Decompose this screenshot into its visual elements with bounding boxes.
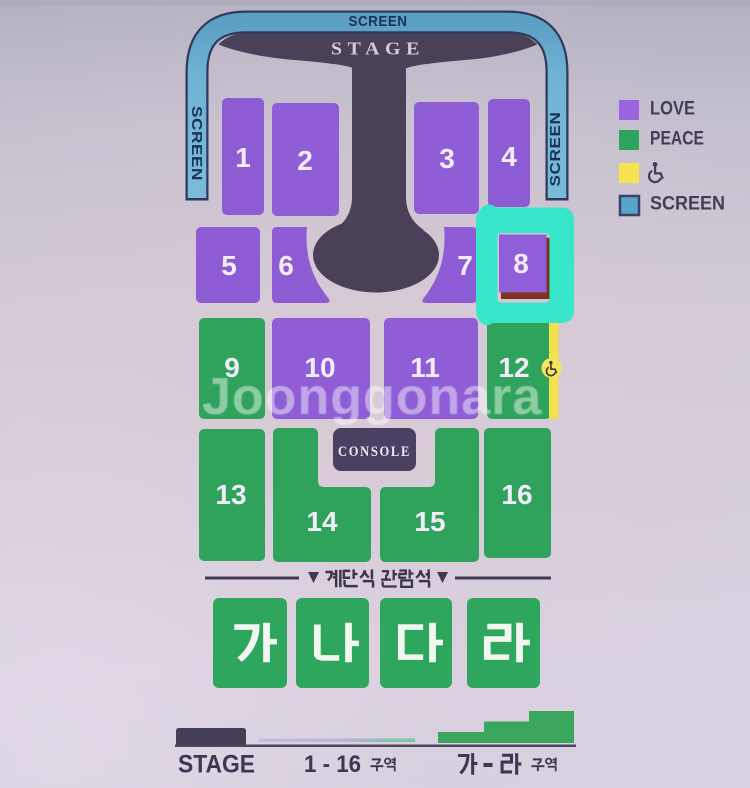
svg-text:SCREEN: SCREEN (547, 112, 564, 187)
svg-text:6: 6 (278, 250, 294, 281)
svg-text:SCREEN: SCREEN (650, 194, 725, 215)
svg-text:Joonggonara: Joonggonara (202, 368, 542, 426)
svg-text:4: 4 (501, 141, 517, 172)
svg-text:STAGE: STAGE (178, 751, 255, 779)
svg-text:3: 3 (439, 143, 455, 174)
svg-text:SCREEN: SCREEN (188, 106, 205, 181)
svg-text:1 - 16: 1 - 16 (304, 751, 361, 778)
svg-text:STAGE: STAGE (331, 39, 425, 59)
svg-text:14: 14 (306, 506, 338, 537)
svg-text:PEACE: PEACE (650, 129, 704, 150)
svg-text:1: 1 (235, 142, 251, 173)
svg-text:SCREEN: SCREEN (349, 14, 408, 30)
svg-text:LOVE: LOVE (650, 99, 695, 120)
svg-text:13: 13 (215, 479, 246, 510)
svg-text:CONSOLE: CONSOLE (338, 444, 411, 460)
svg-text:5: 5 (221, 250, 237, 281)
svg-text:8: 8 (513, 248, 529, 279)
svg-text:2: 2 (297, 145, 313, 176)
svg-text:16: 16 (501, 479, 532, 510)
svg-text:15: 15 (414, 506, 445, 537)
svg-text:7: 7 (457, 250, 473, 281)
